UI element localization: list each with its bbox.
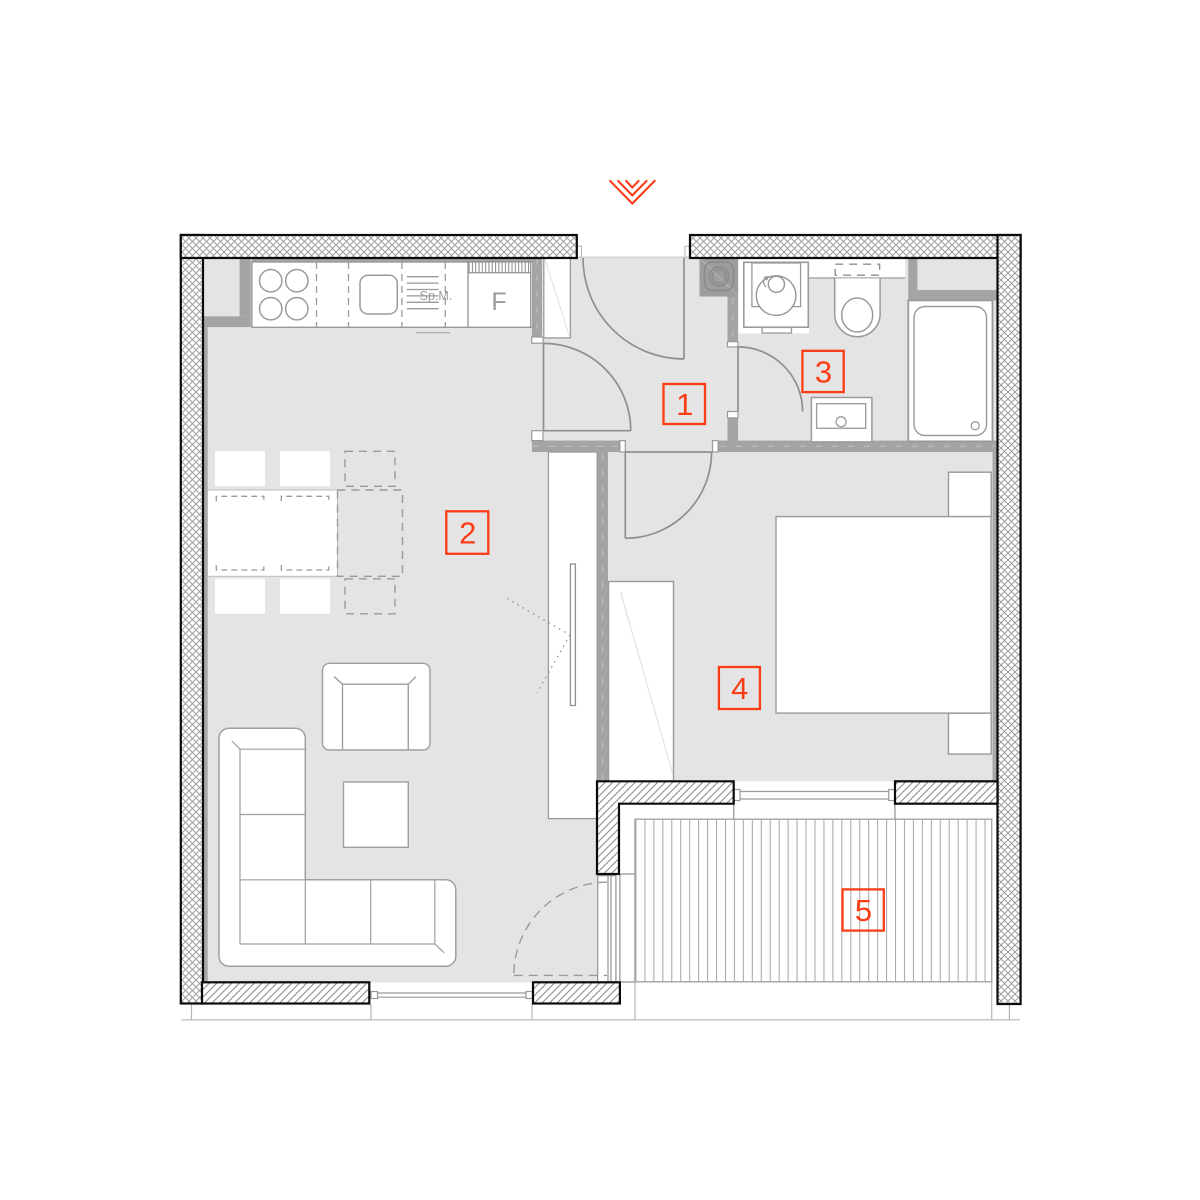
- svg-text:5: 5: [855, 893, 872, 928]
- svg-text:1: 1: [676, 387, 693, 422]
- svg-text:2: 2: [459, 516, 476, 551]
- svg-text:Sp.M.: Sp.M.: [420, 289, 453, 303]
- svg-text:4: 4: [731, 671, 748, 706]
- svg-text:F: F: [491, 288, 506, 316]
- svg-text:3: 3: [815, 355, 832, 390]
